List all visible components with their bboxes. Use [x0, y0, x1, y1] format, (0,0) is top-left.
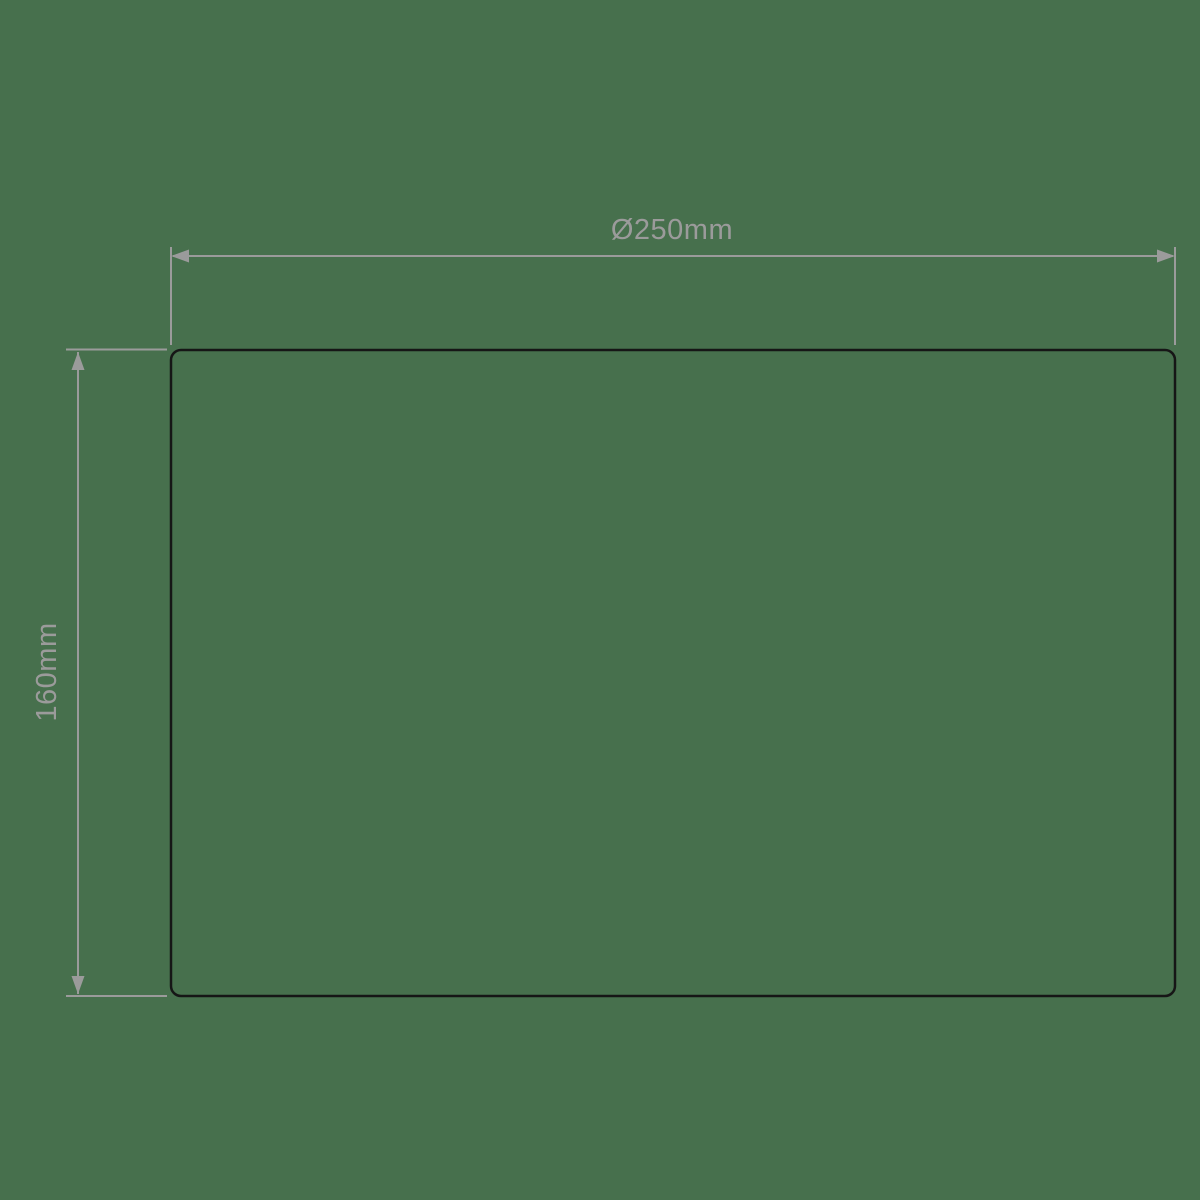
width-dimension-label: Ø250mm [611, 214, 733, 246]
arrowhead-left-icon [171, 250, 189, 263]
height-dimension-label: 160mm [31, 622, 63, 721]
dimension-drawing-canvas: Ø250mm 160mm [0, 0, 1200, 1200]
height-dimension-group: 160mm [31, 350, 167, 997]
arrowhead-right-icon [1157, 250, 1175, 263]
product-outline-rect [171, 350, 1175, 996]
arrowhead-up-icon [72, 352, 85, 370]
dimension-diagram: Ø250mm 160mm [0, 0, 1200, 1200]
arrowhead-down-icon [72, 976, 85, 994]
width-dimension-group: Ø250mm [171, 214, 1175, 345]
